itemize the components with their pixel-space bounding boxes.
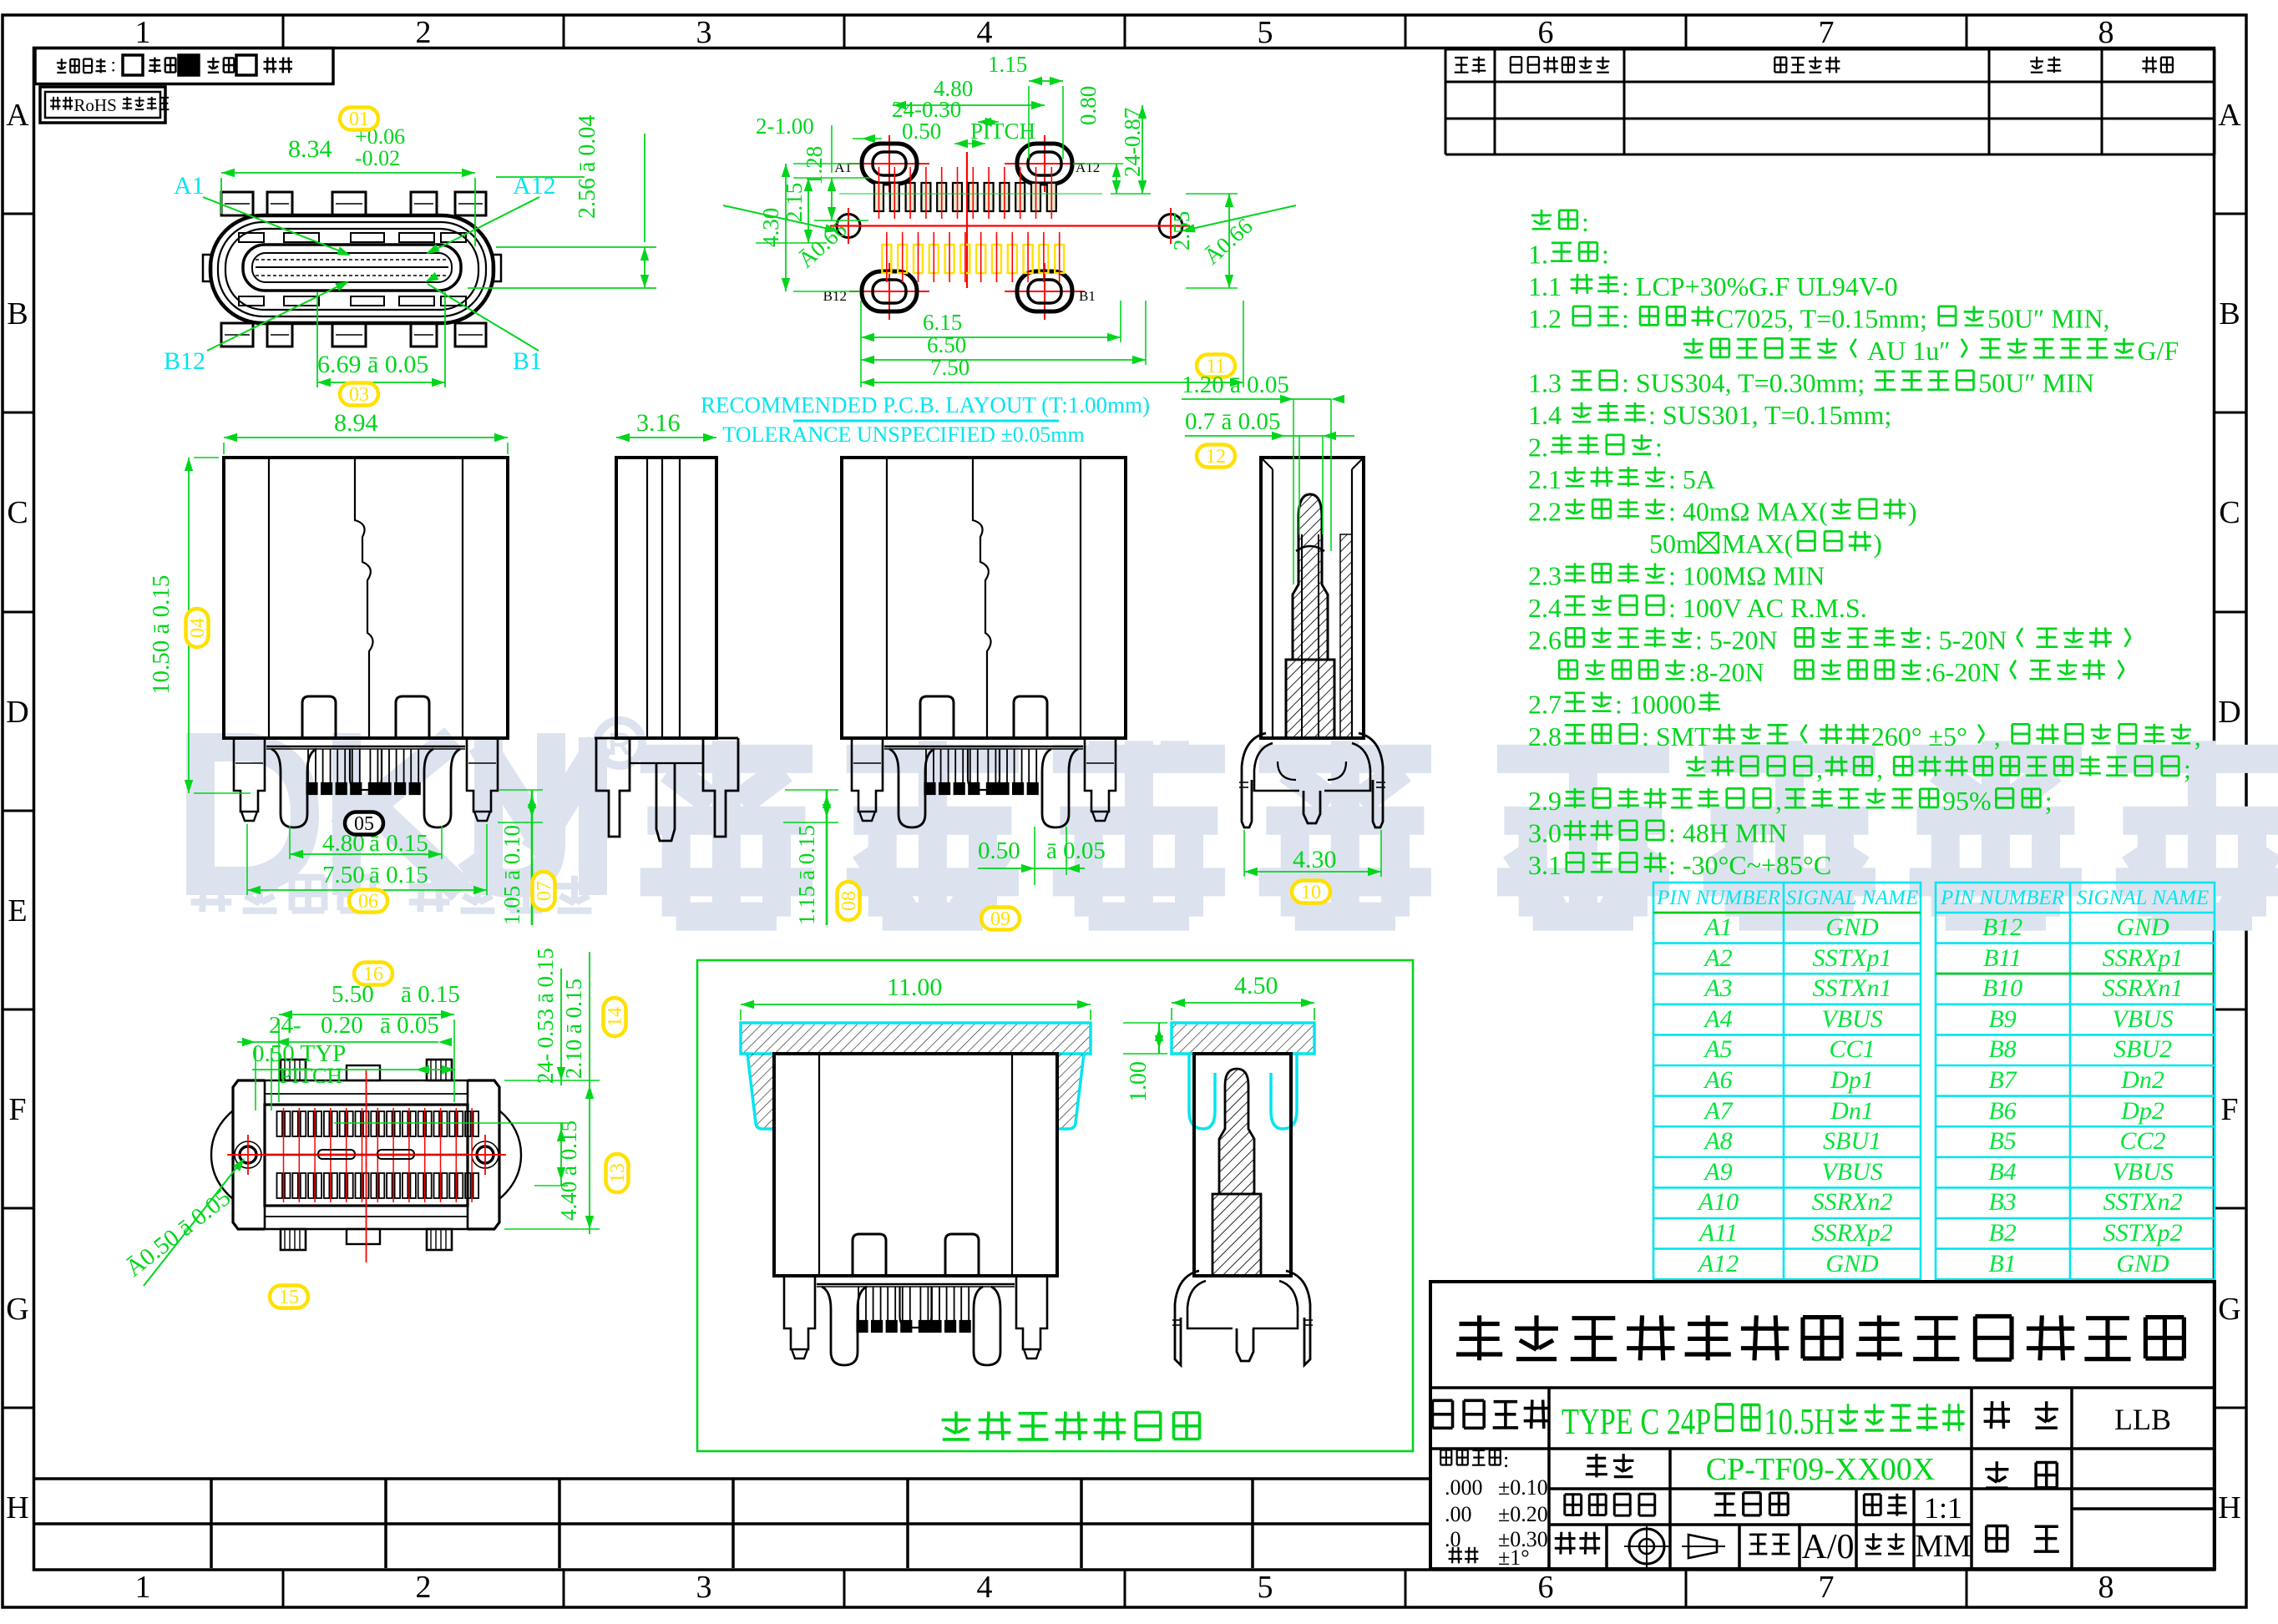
svg-text:3.16: 3.16 (636, 409, 681, 437)
svg-text:±0.20: ±0.20 (1498, 1502, 1548, 1526)
svg-text:SSRXp2: SSRXp2 (1812, 1219, 1893, 1247)
svg-text:3: 3 (696, 1570, 712, 1605)
svg-text:G/F: G/F (2138, 336, 2179, 366)
svg-text:2.4: 2.4 (1528, 593, 1562, 623)
svg-text:C: C (2219, 495, 2240, 530)
svg-text:,: , (2194, 721, 2201, 751)
svg-text:: 40mΩ MAX(: : 40mΩ MAX( (1668, 497, 1828, 527)
svg-text:MAX(: MAX( (1722, 529, 1793, 559)
svg-text:6: 6 (1538, 15, 1554, 50)
svg-text:0.20: 0.20 (321, 1012, 363, 1039)
svg-text:11.00: 11.00 (887, 974, 942, 1001)
svg-text:CC1: CC1 (1829, 1035, 1875, 1063)
svg-text:B8: B8 (1988, 1035, 2016, 1063)
svg-text:1.28: 1.28 (802, 146, 827, 185)
svg-text:1: 1 (135, 15, 151, 50)
svg-text:7.50: 7.50 (322, 862, 365, 888)
svg-text:4.30: 4.30 (1293, 846, 1337, 873)
svg-text:A6: A6 (1703, 1066, 1732, 1094)
svg-text:A11: A11 (1698, 1219, 1738, 1247)
svg-text:B5: B5 (1988, 1127, 2016, 1155)
svg-text:ā 0.15: ā 0.15 (369, 862, 428, 888)
svg-text:.00: .00 (1445, 1502, 1472, 1526)
svg-text:G: G (6, 1292, 28, 1327)
svg-text:B12: B12 (823, 288, 847, 304)
svg-text:2.3: 2.3 (1528, 561, 1562, 591)
svg-text:SSRXp1: SSRXp1 (2103, 944, 2184, 972)
svg-text:Dn2: Dn2 (2120, 1066, 2164, 1094)
svg-text:F: F (8, 1092, 26, 1127)
svg-text:7.50: 7.50 (930, 355, 969, 380)
svg-text:: SUS301, T=0.15mm;: : SUS301, T=0.15mm; (1648, 400, 1891, 430)
svg-text:PIN NUMBER: PIN NUMBER (1940, 887, 2064, 909)
svg-text:A/0: A/0 (1802, 1528, 1855, 1566)
svg-text:B1: B1 (1988, 1250, 2016, 1277)
svg-text::: : (1655, 433, 1663, 463)
svg-text:RoHS: RoHS (73, 95, 116, 115)
svg-text:A9: A9 (1703, 1158, 1732, 1186)
svg-text:B6: B6 (1988, 1097, 2016, 1125)
svg-text:VBUS: VBUS (1821, 1158, 1882, 1186)
svg-text:,: , (1775, 786, 1782, 816)
svg-text:G: G (2218, 1292, 2240, 1327)
svg-text:A5: A5 (1703, 1035, 1732, 1063)
svg-text:): ) (1908, 497, 1917, 527)
svg-text:LLB: LLB (2114, 1403, 2171, 1436)
svg-text:12: 12 (1206, 446, 1226, 468)
svg-text:3: 3 (696, 15, 712, 50)
svg-text:,: , (1876, 754, 1883, 784)
svg-text:4: 4 (977, 15, 993, 50)
svg-text:GND: GND (1825, 1250, 1879, 1277)
svg-text::: : (1602, 240, 1609, 270)
svg-text:SBU1: SBU1 (1823, 1127, 1881, 1155)
svg-text:04: 04 (187, 618, 209, 638)
svg-text:B2: B2 (1988, 1219, 2016, 1247)
svg-text:2.6: 2.6 (1528, 625, 1562, 655)
svg-text:CP-TF09-XX00X: CP-TF09-XX00X (1706, 1452, 1935, 1487)
svg-text:GND: GND (2116, 913, 2169, 941)
svg-text:RECOMMENDED P.C.B. LAYOUT (T:: RECOMMENDED P.C.B. LAYOUT (T:1.00mm) (701, 392, 1150, 417)
svg-text:A12: A12 (513, 172, 556, 200)
svg-text:±0.10: ±0.10 (1498, 1475, 1548, 1500)
svg-text:0.50: 0.50 (902, 119, 941, 144)
svg-text::: : (1622, 304, 1629, 334)
svg-text:2.56 ā 0.04: 2.56 ā 0.04 (575, 115, 600, 219)
svg-text:A7: A7 (1703, 1097, 1734, 1125)
svg-text:6: 6 (1538, 1570, 1554, 1605)
svg-text:2.9: 2.9 (1528, 786, 1562, 816)
svg-text:B12: B12 (1982, 913, 2022, 941)
svg-text:B1: B1 (1079, 288, 1096, 304)
svg-text:1.15: 1.15 (988, 52, 1027, 77)
svg-text:F: F (2220, 1092, 2238, 1127)
svg-text:6.15: 6.15 (923, 310, 962, 335)
svg-text:03: 03 (349, 384, 369, 406)
svg-text:2.7: 2.7 (1528, 690, 1562, 720)
svg-text:ā 0.15: ā 0.15 (401, 981, 460, 1008)
svg-text:6.50: 6.50 (927, 332, 966, 357)
svg-text:VBUS: VBUS (2112, 1005, 2173, 1033)
svg-text:B3: B3 (1988, 1188, 2016, 1216)
svg-text:±1°: ±1° (1498, 1546, 1530, 1570)
svg-text:2: 2 (416, 15, 432, 50)
svg-text:5: 5 (1258, 1570, 1273, 1605)
svg-text:: 5-20N: : 5-20N (1695, 625, 1778, 655)
svg-text:1.05 ā 0.10: 1.05 ā 0.10 (499, 825, 524, 925)
svg-text:;: ; (2184, 754, 2191, 784)
svg-text:SIGNAL NAME: SIGNAL NAME (1786, 887, 1919, 909)
svg-text:A8: A8 (1703, 1127, 1732, 1155)
svg-text:10.50 ā 0.15: 10.50 ā 0.15 (148, 575, 175, 695)
svg-text:10: 10 (1301, 882, 1321, 903)
svg-text:05: 05 (354, 813, 374, 835)
svg-text:B7: B7 (1988, 1066, 2017, 1094)
svg-text:2.8: 2.8 (1528, 721, 1562, 751)
svg-text:SSTXn2: SSTXn2 (2103, 1188, 2182, 1216)
svg-text::6-20N: :6-20N (1925, 657, 2001, 687)
svg-text:D: D (2218, 695, 2240, 730)
svg-text:B11: B11 (1983, 944, 2022, 972)
svg-text:A: A (2218, 98, 2241, 133)
svg-text:,: , (1994, 721, 2001, 751)
svg-text:SSTXp2: SSTXp2 (2103, 1219, 2182, 1247)
svg-text:Dn1: Dn1 (1830, 1097, 1874, 1125)
svg-text:TYPE C 24P: TYPE C 24P (1562, 1401, 1711, 1442)
svg-text:SIGNAL NAME: SIGNAL NAME (2077, 887, 2210, 909)
svg-text:24- 0.53 ā 0.15: 24- 0.53 ā 0.15 (533, 948, 558, 1084)
svg-text:7: 7 (1819, 15, 1835, 50)
svg-text:: -30°C~+85°C: : -30°C~+85°C (1668, 850, 1831, 880)
svg-text:4: 4 (977, 1570, 993, 1605)
svg-text:B: B (2219, 296, 2240, 331)
svg-text:C: C (7, 495, 28, 530)
svg-text:B12: B12 (164, 347, 205, 375)
svg-text:10.5H: 10.5H (1764, 1401, 1835, 1442)
svg-text:SSRXn1: SSRXn1 (2103, 974, 2184, 1002)
svg-text:13: 13 (607, 1163, 629, 1183)
svg-text:5.50: 5.50 (332, 981, 374, 1008)
svg-text:B10: B10 (1982, 974, 2022, 1002)
svg-text:2-1.00: 2-1.00 (756, 114, 814, 139)
svg-text:0.7 ā 0.05: 0.7 ā 0.05 (1185, 408, 1280, 435)
svg-text::: : (1582, 207, 1589, 237)
svg-text:A3: A3 (1703, 974, 1732, 1002)
svg-text:2: 2 (416, 1570, 432, 1605)
svg-text:): ) (1873, 529, 1882, 559)
svg-text:: 100MΩ MIN: : 100MΩ MIN (1668, 561, 1825, 591)
svg-text:E: E (8, 893, 27, 928)
svg-text:1: 1 (135, 1570, 151, 1605)
svg-text:3.1: 3.1 (1528, 850, 1562, 880)
svg-text:4.50: 4.50 (1234, 972, 1278, 999)
svg-text:.000: .000 (1445, 1475, 1483, 1500)
svg-text:1:1: 1:1 (1924, 1491, 1962, 1525)
svg-text:: SUS304, T=0.30mm;: : SUS304, T=0.30mm; (1622, 368, 1865, 398)
svg-text:TOLERANCE UNSPECIFIED ±0.05mm: TOLERANCE UNSPECIFIED ±0.05mm (722, 422, 1084, 447)
svg-text:PITCH: PITCH (970, 119, 1035, 144)
svg-text:09: 09 (990, 908, 1010, 930)
svg-text:: 5-20N: : 5-20N (1925, 625, 2007, 655)
svg-text:H: H (2218, 1490, 2240, 1525)
svg-text:Dp1: Dp1 (1830, 1066, 1874, 1094)
svg-text:0.80: 0.80 (1076, 86, 1101, 125)
svg-text:A4: A4 (1703, 1005, 1732, 1033)
svg-text:B4: B4 (1988, 1158, 2016, 1186)
svg-text:14: 14 (605, 1007, 626, 1027)
svg-text:SBU2: SBU2 (2113, 1035, 2172, 1063)
svg-text:2.10 ā 0.15: 2.10 ā 0.15 (561, 979, 586, 1079)
svg-text:8.34: 8.34 (288, 135, 332, 163)
svg-text:6.69 ā 0.05: 6.69 ā 0.05 (317, 351, 428, 378)
svg-text:0.50: 0.50 (978, 837, 1020, 864)
svg-text:: LCP+30%G.F UL94V-0: : LCP+30%G.F UL94V-0 (1622, 271, 1898, 301)
svg-text:;: ; (2045, 786, 2053, 816)
svg-text:: SMT: : SMT (1642, 721, 1711, 751)
svg-text:: 5A: : 5A (1668, 464, 1715, 494)
svg-text:VBUS: VBUS (2112, 1158, 2173, 1186)
svg-text:R: R (608, 727, 630, 762)
svg-text:2.2: 2.2 (1528, 497, 1562, 527)
svg-text:D: D (6, 695, 28, 730)
svg-text:ā 0.05: ā 0.05 (1046, 837, 1106, 864)
svg-text:08: 08 (838, 891, 860, 911)
svg-text:1.2: 1.2 (1528, 304, 1562, 334)
svg-text:1.3: 1.3 (1528, 368, 1562, 398)
svg-text:1.20 ā 0.05: 1.20 ā 0.05 (1182, 372, 1289, 398)
svg-text:CC2: CC2 (2119, 1127, 2165, 1155)
svg-text:1.15 ā 0.15: 1.15 ā 0.15 (794, 825, 819, 925)
svg-text:: 48H MIN: : 48H MIN (1668, 818, 1787, 848)
svg-text:4.40 ā 0.15: 4.40 ā 0.15 (556, 1121, 581, 1221)
svg-text:1.: 1. (1528, 240, 1548, 270)
svg-text:95%: 95% (1942, 786, 1992, 816)
svg-text:01: 01 (349, 109, 369, 130)
svg-text:SSTXp1: SSTXp1 (1812, 944, 1891, 972)
svg-text:: 10000: : 10000 (1615, 690, 1696, 720)
svg-text:-0.02: -0.02 (355, 146, 400, 170)
svg-text:24-: 24- (269, 1012, 301, 1039)
svg-text:06: 06 (358, 891, 378, 913)
svg-text:A10: A10 (1697, 1188, 1739, 1216)
svg-text::8-20N: :8-20N (1688, 657, 1764, 687)
svg-text:7: 7 (1819, 1570, 1835, 1605)
svg-text:SSTXn1: SSTXn1 (1812, 974, 1891, 1002)
svg-text:15: 15 (279, 1287, 299, 1308)
svg-text:A1: A1 (174, 172, 205, 200)
svg-text:B: B (7, 296, 28, 331)
svg-text:50U″ MIN,: 50U″ MIN, (1987, 304, 2110, 334)
svg-text::: : (1503, 1448, 1509, 1472)
svg-text:: 100V AC R.M.S.: : 100V AC R.M.S. (1668, 593, 1867, 623)
svg-text:PIN NUMBER: PIN NUMBER (1656, 887, 1780, 909)
svg-text:8: 8 (2098, 1570, 2114, 1605)
svg-text:C7025, T=0.15mm;: C7025, T=0.15mm; (1716, 304, 1927, 334)
svg-text:A2: A2 (1703, 944, 1732, 972)
svg-text:VBUS: VBUS (1821, 1005, 1882, 1033)
svg-text:1.4: 1.4 (1528, 400, 1562, 430)
svg-text:A12: A12 (1076, 159, 1100, 175)
svg-text:A: A (6, 98, 29, 133)
svg-text:AU 1u″: AU 1u″ (1867, 336, 1951, 366)
svg-text:,: , (1816, 754, 1823, 784)
svg-text:1.00: 1.00 (1126, 1061, 1152, 1102)
svg-text:1.1: 1.1 (1528, 271, 1562, 301)
svg-text:A1: A1 (1703, 913, 1732, 941)
svg-text:3.0: 3.0 (1528, 818, 1562, 848)
svg-text:GND: GND (1825, 913, 1879, 941)
svg-text:H: H (6, 1490, 28, 1525)
svg-text:8.94: 8.94 (334, 409, 378, 437)
svg-text:PITCH: PITCH (280, 1064, 342, 1088)
svg-text:GND: GND (2116, 1250, 2169, 1277)
svg-text:5: 5 (1258, 15, 1273, 50)
svg-text:MM: MM (1915, 1529, 1972, 1564)
svg-text:07: 07 (534, 881, 555, 901)
svg-text:SSRXn2: SSRXn2 (1812, 1188, 1893, 1216)
svg-text:Dp2: Dp2 (2120, 1097, 2164, 1125)
svg-text:A1: A1 (834, 159, 852, 175)
svg-text:260° ±5°: 260° ±5° (1871, 721, 1967, 751)
svg-text:8: 8 (2098, 15, 2114, 50)
svg-text:2.1: 2.1 (1528, 464, 1562, 494)
svg-text:50m: 50m (1649, 529, 1697, 559)
svg-text:B9: B9 (1988, 1005, 2016, 1033)
svg-text:A12: A12 (1697, 1250, 1739, 1277)
svg-text:50U″ MIN: 50U″ MIN (1978, 368, 2094, 398)
svg-text:B1: B1 (513, 347, 542, 375)
svg-text:ā 0.05: ā 0.05 (380, 1012, 439, 1039)
svg-text:2.: 2. (1528, 433, 1548, 463)
